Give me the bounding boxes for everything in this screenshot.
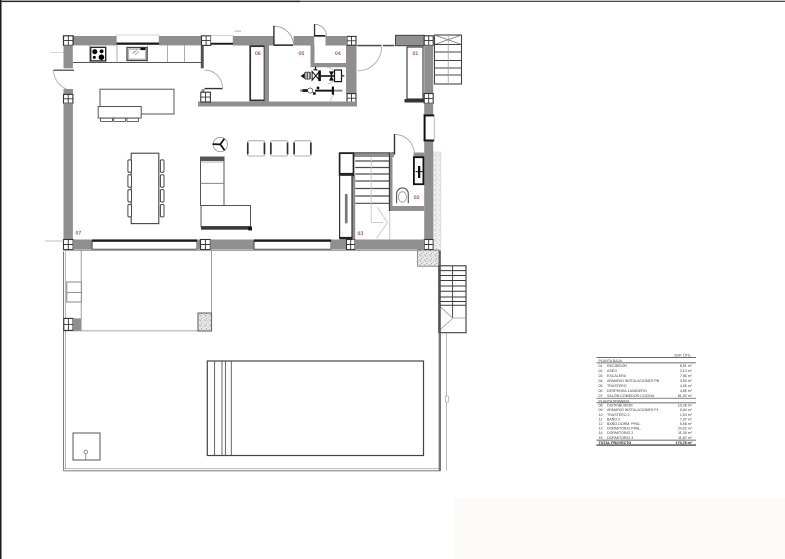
svg-text:ESCALERA: ESCALERA bbox=[607, 374, 627, 378]
svg-text:24,02 m²: 24,02 m² bbox=[678, 427, 693, 431]
svg-text:TOTAL PROYECTO: TOTAL PROYECTO bbox=[599, 441, 632, 445]
svg-text:09: 09 bbox=[599, 408, 603, 412]
svg-text:1,54 m²: 1,54 m² bbox=[680, 413, 693, 417]
svg-text:06: 06 bbox=[599, 389, 603, 393]
svg-text:DORMITORIO 3: DORMITORIO 3 bbox=[607, 436, 633, 440]
svg-text:TRASTERO: TRASTERO bbox=[607, 384, 627, 388]
svg-text:0,94 m²: 0,94 m² bbox=[680, 408, 693, 412]
svg-text:11,35 m²: 11,35 m² bbox=[678, 431, 693, 435]
svg-text:05: 05 bbox=[599, 384, 603, 388]
svg-text:07: 07 bbox=[599, 394, 603, 398]
svg-text:13: 13 bbox=[599, 427, 603, 431]
svg-text:7,37 m²: 7,37 m² bbox=[680, 417, 693, 421]
svg-text:BAÑO DORM. PPAL.: BAÑO DORM. PPAL. bbox=[607, 421, 641, 426]
svg-text:14: 14 bbox=[599, 431, 603, 435]
svg-text:81,92 m²: 81,92 m² bbox=[678, 394, 693, 398]
svg-text:10: 10 bbox=[599, 413, 603, 417]
svg-text:01: 01 bbox=[413, 51, 419, 57]
svg-text:05: 05 bbox=[299, 51, 305, 57]
svg-text:02: 02 bbox=[414, 195, 420, 201]
svg-text:04: 04 bbox=[599, 379, 603, 383]
svg-text:02: 02 bbox=[599, 369, 603, 373]
svg-text:DORMITORIO 2: DORMITORIO 2 bbox=[607, 431, 633, 435]
svg-text:ASEO: ASEO bbox=[607, 369, 617, 373]
svg-text:15: 15 bbox=[599, 436, 603, 440]
svg-text:01: 01 bbox=[599, 364, 603, 368]
svg-text:12: 12 bbox=[599, 422, 603, 426]
svg-text:03: 03 bbox=[599, 374, 603, 378]
svg-text:11,87 m²: 11,87 m² bbox=[678, 436, 693, 440]
svg-text:10,28 m²: 10,28 m² bbox=[678, 404, 693, 408]
svg-text:11: 11 bbox=[599, 417, 603, 421]
svg-text:RECIBIDOR: RECIBIDOR bbox=[607, 364, 627, 368]
svg-text:3,50 m²: 3,50 m² bbox=[680, 379, 693, 383]
svg-text:6,58 m²: 6,58 m² bbox=[680, 422, 693, 426]
svg-text:2,13 m²: 2,13 m² bbox=[680, 369, 693, 373]
svg-text:04: 04 bbox=[335, 51, 341, 57]
svg-text:DESPENSA-LAVADERO: DESPENSA-LAVADERO bbox=[607, 389, 647, 393]
svg-text:07: 07 bbox=[76, 231, 82, 237]
svg-text:BAÑO 2: BAÑO 2 bbox=[607, 416, 620, 421]
svg-text:4,85 m²: 4,85 m² bbox=[680, 389, 693, 393]
svg-text:DORMITORIO PPAL.: DORMITORIO PPAL. bbox=[607, 427, 641, 431]
svg-text:PLANTA BAJA: PLANTA BAJA bbox=[599, 359, 623, 363]
svg-text:170,78 m²: 170,78 m² bbox=[676, 441, 693, 445]
svg-text:8,81 m²: 8,81 m² bbox=[680, 364, 693, 368]
svg-text:08: 08 bbox=[599, 404, 603, 408]
svg-text:DISTRIBUIDOR: DISTRIBUIDOR bbox=[607, 404, 633, 408]
svg-text:ARMARIO INSTALACIONES P1: ARMARIO INSTALACIONES P1 bbox=[607, 408, 659, 412]
svg-text:4,65 m²: 4,65 m² bbox=[680, 384, 693, 388]
svg-text:SALÓN-COMEDOR-COCINA: SALÓN-COMEDOR-COCINA bbox=[607, 393, 655, 398]
svg-text:06: 06 bbox=[255, 51, 261, 57]
svg-text:7,86 m²: 7,86 m² bbox=[680, 374, 693, 378]
svg-text:SUP. ÚTIL: SUP. ÚTIL bbox=[674, 352, 691, 357]
svg-text:ARMARIO INSTALACIONES PB: ARMARIO INSTALACIONES PB bbox=[607, 379, 660, 383]
svg-text:TRASTERO 2: TRASTERO 2 bbox=[607, 413, 630, 417]
svg-text:03: 03 bbox=[358, 231, 364, 237]
